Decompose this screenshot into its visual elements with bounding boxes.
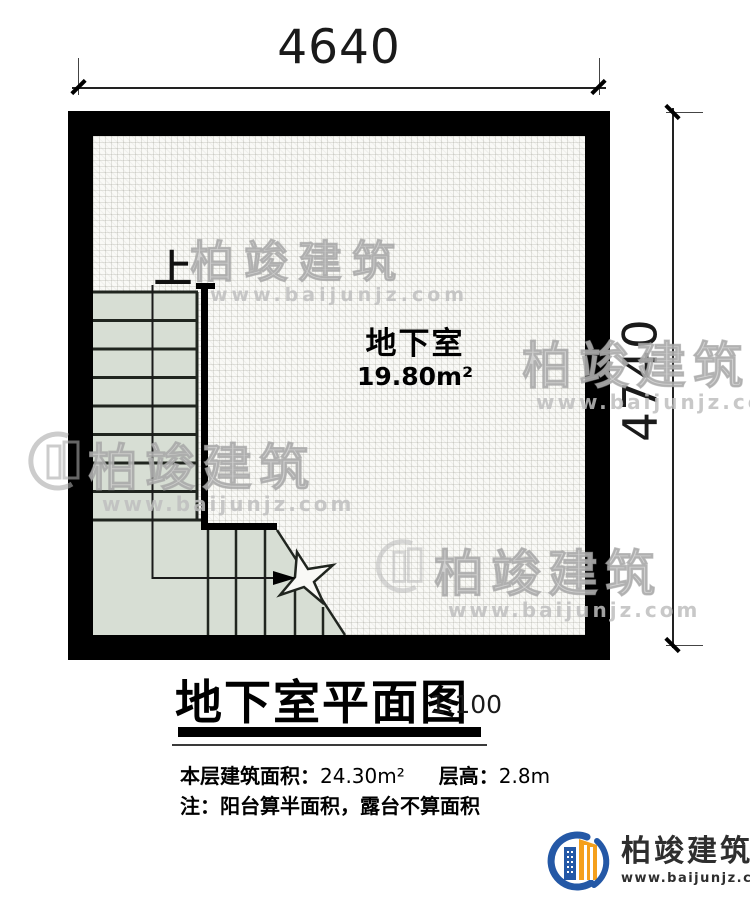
dimension-right-line xyxy=(672,108,674,648)
area-info-line: 本层建筑面积：24.30m² 层高：2.8m xyxy=(180,760,550,789)
dimension-right-value: 4740 xyxy=(614,318,669,442)
brand-name: 柏竣建筑 xyxy=(621,837,750,867)
dimension-top-line xyxy=(72,87,606,89)
room-name: 地下室 xyxy=(335,328,495,361)
room-area: 19.80m² xyxy=(335,364,495,390)
room-label: 地下室 19.80m² xyxy=(335,328,495,390)
sheet-scale: 1:100 xyxy=(430,690,502,719)
note-line: 注：阳台算半面积，露台不算面积 xyxy=(180,790,480,819)
stairs-up-label: 上 xyxy=(154,238,192,293)
title-underline-rule xyxy=(172,744,487,746)
floor-plan-sheet: 4640 4740 xyxy=(0,0,750,899)
brand-site: www.baijunjz.com xyxy=(621,871,750,886)
brand-logo-icon xyxy=(543,828,615,894)
floor-area: 本层建筑面积：24.30m² xyxy=(180,760,405,789)
floor-height: 层高：2.8m xyxy=(439,760,550,789)
extension-line xyxy=(599,58,600,95)
sheet-title: 地下室平面图 xyxy=(175,664,469,733)
title-underline-bar xyxy=(178,727,481,737)
brand-logo: 柏竣建筑 www.baijunjz.com xyxy=(543,828,750,894)
dimension-top-value: 4640 xyxy=(72,20,606,75)
